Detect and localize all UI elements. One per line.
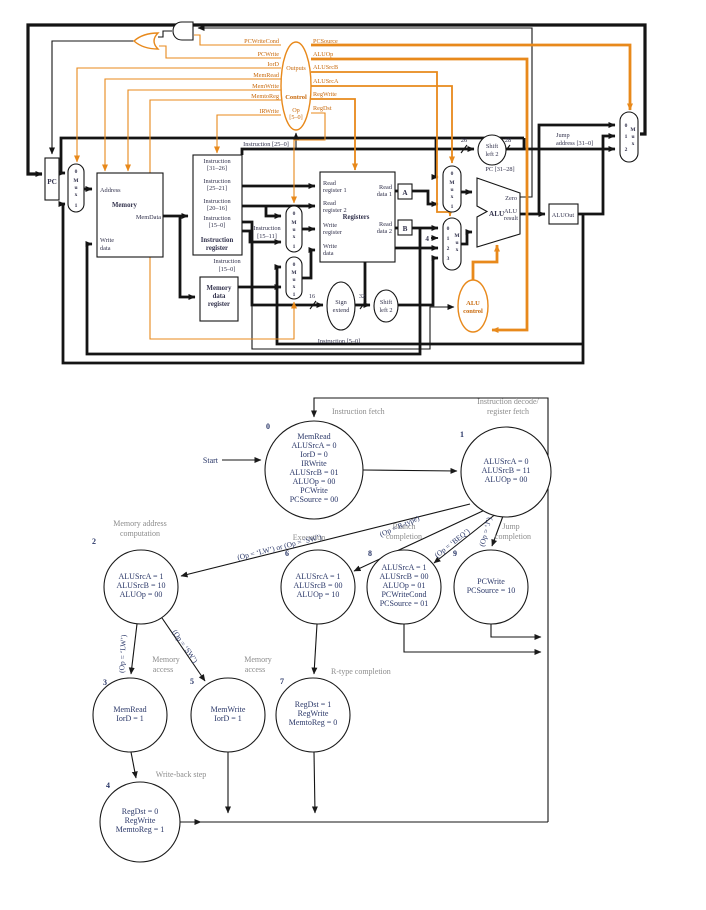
edge-s1-s9 — [492, 516, 503, 546]
edge-s7-merge — [314, 752, 315, 813]
mux-digit: 2 — [447, 246, 450, 252]
width-26: 26 — [461, 137, 467, 144]
memory-memdata-label: MemData — [136, 214, 161, 221]
state-9-line: PCWrite — [477, 577, 505, 586]
state-9-name: Jump — [502, 522, 519, 531]
instr1511-label: Instruction — [253, 225, 281, 232]
pc-label: PC — [47, 178, 57, 186]
mdr-label3: register — [208, 301, 230, 308]
width-28: 28 — [505, 137, 511, 144]
state-6-line: ALUSrcB = 00 — [294, 581, 343, 590]
b-label: B — [403, 225, 408, 233]
signal-pcsource: PCSource — [313, 38, 338, 45]
state-1-line: ALUOp = 00 — [485, 475, 528, 484]
state-8-line: ALUSrcA = 1 — [382, 563, 427, 572]
wire-muxe-alu — [461, 232, 472, 244]
state-0-line: PCWrite — [300, 486, 328, 495]
mux-digit: 1 — [75, 203, 78, 209]
mux-letter: x — [451, 194, 454, 200]
regs-read2: Read — [323, 200, 337, 207]
mux-letter: M — [291, 220, 297, 226]
state-1-number: 1 — [460, 430, 464, 439]
width-32: 32 — [359, 293, 365, 300]
state-6-line: ALUSrcA = 1 — [296, 572, 341, 581]
wire-pcsource — [311, 45, 630, 110]
state-2-name2: computation — [120, 529, 160, 538]
state-5-number: 5 — [190, 677, 194, 686]
alu-title: ALU — [489, 210, 505, 218]
mux-digit: 0 — [293, 211, 296, 217]
state-2-number: 2 — [92, 537, 96, 546]
edge-label-j: (Op = ‘J’) — [477, 516, 494, 548]
shift-left2-upper-oval — [478, 135, 506, 165]
state-2-line: ALUSrcB = 10 — [117, 581, 166, 590]
regs-rd1: Read — [379, 184, 393, 191]
signal-regwrite: RegWrite — [313, 91, 337, 98]
state-0-line: IorD = 0 — [300, 450, 328, 459]
ir-field: Instruction — [203, 215, 231, 222]
regs-reg2: register 2 — [323, 207, 347, 214]
mux-digit: 0 — [75, 169, 78, 175]
shift-lower-label2: left 2 — [379, 307, 392, 314]
mux-letter: u — [631, 134, 634, 140]
mux-letter: M — [291, 270, 297, 276]
regs-rd2b: data 2 — [377, 228, 392, 235]
or-gate — [134, 33, 158, 49]
ir-title2: register — [206, 245, 228, 252]
memory-title: Memory — [112, 202, 138, 209]
state-0-line: ALUSrcA = 0 — [292, 441, 337, 450]
sign-extend-oval — [327, 282, 355, 330]
wire-and-or — [158, 31, 172, 37]
memory-address-label: Address — [100, 187, 121, 194]
state-8-number: 8 — [368, 549, 372, 558]
state-0-line: ALUOp = 00 — [293, 477, 336, 486]
state-7-line: RegDst = 1 — [295, 700, 332, 709]
ir-field-bits: [25–21] — [207, 185, 227, 192]
state-5-name: Memory — [244, 655, 272, 664]
edge-s9-trunk — [491, 624, 541, 637]
pcsource-mux — [620, 112, 638, 162]
mux-digit: 1 — [447, 236, 450, 242]
mux-digit: 0 — [447, 226, 450, 232]
shift-upper-label: Shift — [486, 143, 498, 150]
mux-letter: x — [75, 192, 78, 198]
alu-result-label2: result — [504, 215, 518, 222]
fsm-diagram: Start 0 Instruction fetch MemRead ALUSrc… — [0, 392, 706, 910]
state-7-line: RegWrite — [298, 709, 329, 718]
mux-letter: x — [456, 247, 459, 253]
signal-iord: IorD — [267, 61, 279, 68]
state-0-line: IRWrite — [301, 459, 327, 468]
wire-muxc-wdata — [302, 250, 315, 278]
edge-label-lw: (Op = ‘LW’) — [117, 634, 128, 673]
state-1-line: ALUSrcB = 11 — [482, 466, 531, 475]
state-0-number: 0 — [266, 422, 270, 431]
mux-letter: x — [632, 141, 635, 147]
regs-wreg2: register — [323, 229, 343, 236]
mux-letter: M — [73, 178, 79, 184]
start-label: Start — [203, 456, 219, 465]
mux-digit: 1 — [293, 292, 296, 298]
figure-page: PC 0 M u x 1 Address Memory MemData Writ… — [0, 0, 706, 910]
instr50-label: Instruction [5–0] — [318, 338, 361, 345]
state-4-line: RegWrite — [125, 816, 156, 825]
state-7-line: MemtoReg = 0 — [289, 718, 338, 727]
ir-field-bits: [31–26] — [207, 165, 227, 172]
signal-memtoreg: MemtoReg — [251, 93, 279, 100]
instr250-label: Instruction [25–0] — [243, 141, 289, 148]
regs-rd2: Read — [379, 221, 393, 228]
state-9-number: 9 — [453, 549, 457, 558]
ir-field: Instruction — [203, 158, 231, 165]
jump-address-label: Jump — [556, 132, 570, 139]
edge-s0-s1 — [363, 470, 457, 471]
state-1-name2: register fetch — [487, 407, 529, 416]
wire-jump-bus — [242, 149, 474, 155]
mux-letter: u — [74, 185, 77, 191]
jump-address-label2: address [31–0] — [556, 140, 593, 147]
edge-s6-s7 — [314, 624, 317, 674]
wire-a-muxd — [412, 191, 438, 204]
datapath-diagram: PC 0 M u x 1 Address Memory MemData Writ… — [0, 0, 706, 392]
state-3-line: IorD = 1 — [116, 714, 144, 723]
regs-read1: Read — [323, 180, 337, 187]
regs-wreg: Write — [323, 222, 337, 229]
signal-aluop: ALUOp — [313, 51, 333, 58]
edge-s3-s4 — [131, 752, 136, 778]
mux-digit: 2 — [625, 147, 628, 153]
alu-control-label2: control — [463, 308, 483, 315]
instr1511-bits: [15–11] — [257, 233, 277, 240]
state-7-number: 7 — [280, 677, 284, 686]
ir-field: Instruction — [203, 178, 231, 185]
control-title: Control — [285, 94, 307, 101]
wire-aluctl-alu — [473, 245, 497, 280]
mux-digit: 3 — [447, 256, 450, 262]
state-5-line: IorD = 1 — [214, 714, 242, 723]
sign-extend-label: Sign — [335, 299, 347, 306]
state-1-line: ALUSrcA = 0 — [484, 457, 529, 466]
const-four: 4 — [425, 235, 429, 243]
state-8-line: ALUSrcB = 00 — [380, 572, 429, 581]
mdr-label2: data — [213, 293, 226, 300]
signal-alusrca: ALUSrcA — [313, 78, 339, 85]
edge-s2-s3 — [131, 624, 137, 674]
mux-letter: M — [449, 180, 455, 186]
signal-alusrcb: ALUSrcB — [313, 64, 338, 71]
regs-rd1b: data 1 — [377, 191, 392, 198]
state-3-number: 3 — [103, 678, 107, 687]
state-5-name2: access — [245, 665, 265, 674]
regs-title: Registers — [343, 214, 370, 221]
shift-lower-label: Shift — [380, 299, 392, 306]
state-0-line: MemRead — [297, 432, 330, 441]
signal-pcwrite: PCWrite — [258, 51, 280, 58]
state-5-line: MemWrite — [211, 705, 246, 714]
mux-letter: u — [455, 240, 458, 246]
regs-wdata: Write — [323, 243, 337, 250]
state-8-line: PCWriteCond — [381, 590, 426, 599]
mux-letter: M — [630, 127, 636, 133]
state-4-line: MemtoReg = 1 — [116, 825, 165, 834]
state-0-line: ALUSrcB = 01 — [290, 468, 339, 477]
mux-letter: u — [450, 187, 453, 193]
memory-writedata-label: Write — [100, 237, 114, 244]
alu-zero-label: Zero — [505, 195, 517, 202]
alu-result-label: ALU — [504, 208, 517, 215]
state-8-line: PCSource = 01 — [380, 599, 429, 608]
instr150-bits: [15–0] — [219, 266, 236, 273]
alu-control-label: ALU — [466, 300, 480, 307]
edge-s8-trunk — [404, 624, 541, 652]
state-2-line: ALUSrcA = 1 — [119, 572, 164, 581]
ir-field-bits: [15–0] — [209, 222, 226, 229]
state-8-line: ALUOp = 01 — [383, 581, 426, 590]
mux-letter: M — [454, 233, 460, 239]
shift-left2-lower-oval — [374, 290, 398, 322]
signal-memread: MemRead — [253, 72, 280, 79]
sign-extend-label2: extend — [333, 307, 351, 314]
mux-digit: 0 — [625, 123, 628, 129]
ir-field: Instruction — [203, 198, 231, 205]
ir-field-bits: [20–16] — [207, 205, 227, 212]
shift-upper-label2: left 2 — [485, 151, 498, 158]
ir-title: Instruction — [201, 237, 234, 244]
state-4-line: RegDst = 0 — [122, 807, 159, 816]
wire-shift-muxe3 — [398, 258, 438, 305]
regs-reg1: register 1 — [323, 187, 347, 194]
mux-letter: u — [292, 277, 295, 283]
control-op-label: Op — [292, 107, 300, 114]
control-op-bits: [5–0] — [289, 114, 302, 121]
mux-letter: u — [292, 227, 295, 233]
signal-regdst: RegDst — [313, 105, 332, 112]
signal-memwrite: MemWrite — [252, 83, 279, 90]
signal-irwrite: IRWrite — [259, 108, 279, 115]
state-6-number: 6 — [285, 549, 289, 558]
and-gate — [173, 22, 193, 40]
state-6-line: ALUOp = 10 — [297, 590, 340, 599]
wire-ir-muxb0 — [266, 206, 281, 216]
state-4-name: Write-back step — [156, 770, 207, 779]
instr150-label: Instruction — [213, 258, 241, 265]
mdr-label: Memory — [207, 285, 233, 292]
mux-letter: x — [293, 284, 296, 290]
state-2-name: Memory address — [113, 519, 167, 528]
signal-pcwritecond: PCWriteCond — [244, 38, 280, 45]
mux-digit: 1 — [293, 244, 296, 250]
state-4-number: 4 — [106, 781, 110, 790]
mux-digit: 0 — [293, 262, 296, 268]
state-9-name2: completion — [495, 532, 531, 541]
mux-letter: x — [293, 234, 296, 240]
mux-digit: 0 — [451, 171, 454, 177]
mux-digit: 1 — [451, 204, 454, 210]
state-0-name: Instruction fetch — [332, 407, 385, 416]
regs-wdata2: data — [323, 250, 334, 257]
state-3-line: MemRead — [113, 705, 146, 714]
state-9-line: PCSource = 10 — [467, 586, 516, 595]
state-2-line: ALUOp = 00 — [120, 590, 163, 599]
width-16: 16 — [309, 293, 315, 300]
state-1-name: Instruction decode/ — [477, 397, 539, 406]
state-3-name2: access — [153, 665, 173, 674]
mux-digit: 1 — [625, 134, 628, 140]
state-7-name: R-type completion — [331, 667, 391, 676]
state-0-line: PCSource = 00 — [290, 495, 339, 504]
a-label: A — [402, 189, 408, 197]
pc3128-label: PC [31–28] — [485, 166, 514, 173]
state-3-name: Memory — [152, 655, 180, 664]
control-outputs-label: Outputs — [286, 65, 306, 72]
aluout-label: ALUOut — [552, 212, 575, 219]
memory-writedata-label2: data — [100, 245, 111, 252]
